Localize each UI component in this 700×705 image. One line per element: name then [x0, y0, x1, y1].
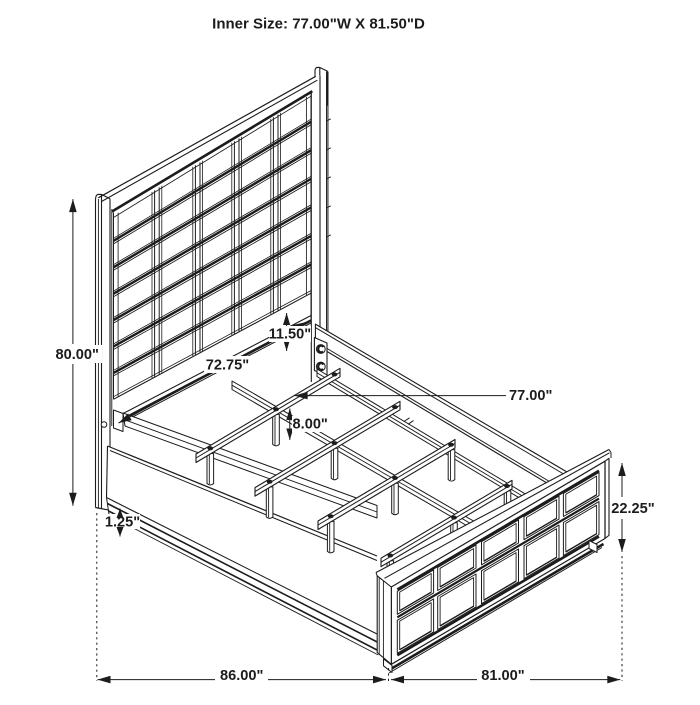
svg-text:77.00": 77.00"	[509, 388, 552, 404]
svg-text:Inner Size: 77.00"W X 81.50"D: Inner Size: 77.00"W X 81.50"D	[212, 16, 425, 33]
svg-text:72.75": 72.75"	[206, 358, 249, 374]
svg-text:81.00": 81.00"	[481, 668, 524, 684]
svg-text:22.25": 22.25"	[611, 501, 654, 517]
svg-text:11.50": 11.50"	[269, 327, 312, 343]
svg-text:80.00": 80.00"	[55, 347, 98, 363]
svg-text:86.00": 86.00"	[220, 668, 263, 684]
svg-text:8.00": 8.00"	[293, 417, 328, 433]
